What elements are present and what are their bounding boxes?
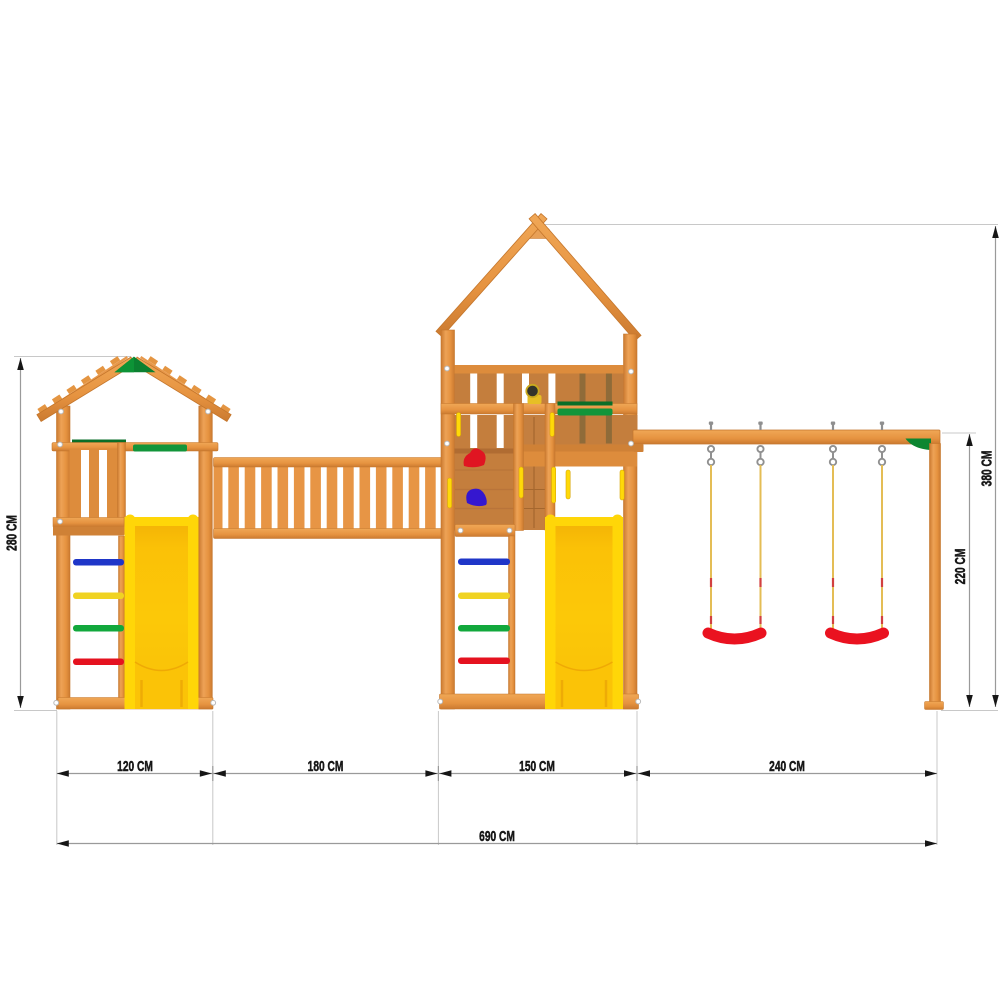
svg-text:380 CM: 380 CM [978, 451, 996, 487]
svg-text:690 CM: 690 CM [479, 827, 515, 845]
svg-text:180 CM: 180 CM [308, 757, 344, 775]
svg-text:220 CM: 220 CM [951, 549, 969, 585]
svg-text:150 CM: 150 CM [519, 757, 555, 775]
svg-text:120 CM: 120 CM [117, 757, 153, 775]
svg-text:280 CM: 280 CM [2, 515, 20, 551]
svg-text:240 CM: 240 CM [769, 757, 805, 775]
